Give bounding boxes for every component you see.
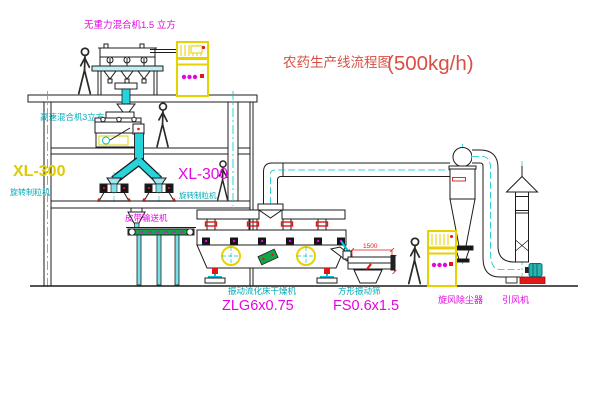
person-figure: [409, 238, 421, 283]
gravity-free-mixer-label: 无重力混合机1.5 立方: [84, 19, 176, 31]
screen-name-label: 方形振动筛: [338, 286, 381, 296]
granulator-center: [142, 172, 176, 204]
dryer-legs: [205, 268, 337, 283]
indicator-light-red: [450, 235, 453, 238]
conveyor-legs: [137, 235, 179, 285]
fluid-bed-dryer: [197, 204, 352, 283]
belt-conveyor-label: 皮带输送机: [125, 213, 168, 223]
fan-base: [520, 277, 545, 284]
indicator-light-red: [202, 46, 205, 49]
screen-length-dimension: 1500: [363, 243, 378, 250]
belt-conveyor: [126, 228, 196, 286]
control-cabinet-top: [177, 42, 208, 96]
screen-model-label: FS0.6x1.5: [333, 298, 399, 314]
downcomer-duct: [472, 150, 520, 277]
dryer-name-label: 振动流化床干燥机: [228, 286, 297, 296]
air-ports: [206, 219, 328, 230]
exhaust-duct: [264, 163, 451, 204]
diagram-title-capacity: (500kg/h): [387, 52, 474, 75]
person-figure: [79, 48, 91, 93]
dryer-model-label: ZLG6x0.75: [222, 298, 294, 314]
person-figure: [157, 103, 168, 146]
control-cabinet-ground: [428, 231, 456, 286]
granulator-left-model-label: XL-300: [13, 163, 66, 180]
granulator-left: [97, 172, 131, 204]
fan-motor: [529, 264, 542, 277]
granulator-center-model-label: XL-300: [178, 166, 228, 183]
cabinet-buttons: [182, 75, 197, 79]
fan-label: 引风机: [502, 294, 529, 305]
granulator-left-name-label: 旋转制粒机: [10, 187, 50, 197]
cad-drawing: 高速混合机3立方: [0, 0, 600, 403]
cyclone-label: 旋风除尘器: [438, 294, 483, 305]
process-flow-diagram: 高速混合机3立方: [0, 0, 600, 403]
diagram-title: 农药生产线流程图: [283, 55, 391, 70]
cabinet-buttons: [432, 263, 447, 267]
granulator-center-name-label: 旋转制粒机: [179, 190, 217, 200]
